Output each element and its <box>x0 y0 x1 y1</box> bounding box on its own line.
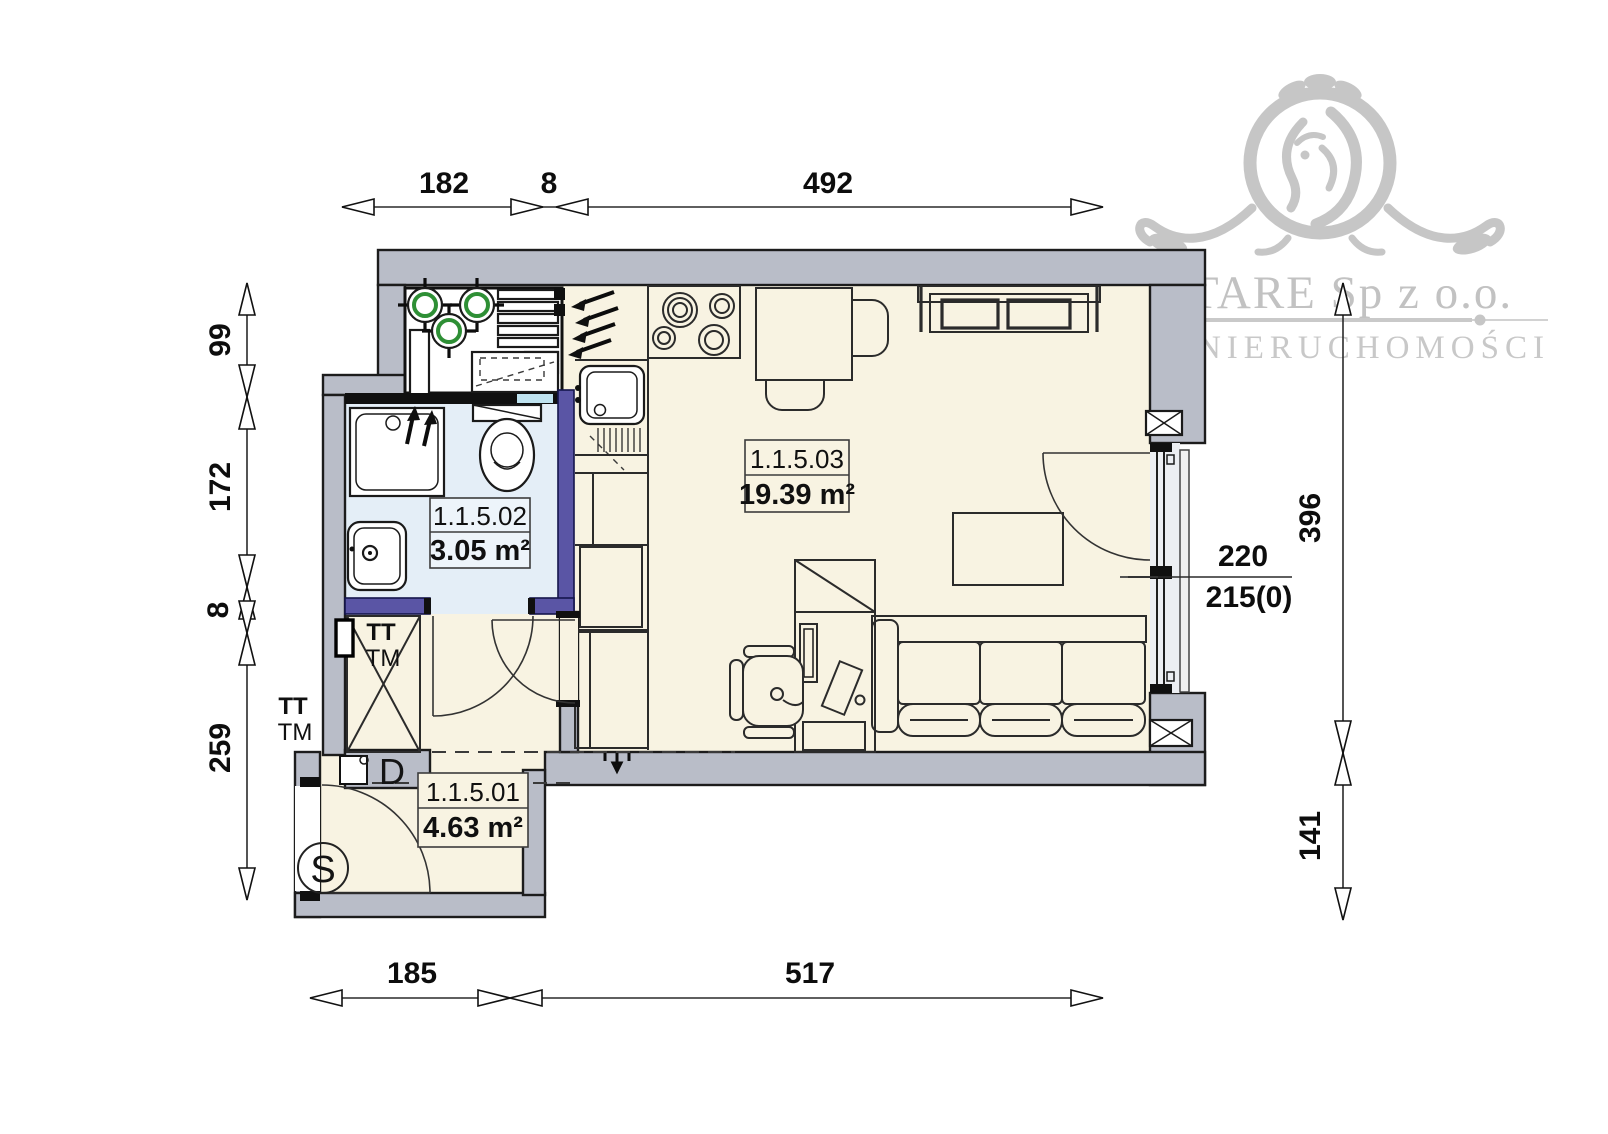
room-01-area: 4.63 m² <box>423 812 523 844</box>
dim-window-lower: 215(0) <box>1206 581 1293 614</box>
tt-label-outside: TT <box>278 693 308 720</box>
lion-crest-icon <box>1140 74 1501 259</box>
dim-window-upper: 220 <box>1218 540 1268 573</box>
dim-bottom-1: 185 <box>387 957 437 990</box>
meter-box <box>340 756 367 784</box>
dim-left-4: 259 <box>204 723 237 773</box>
dining-table <box>756 288 852 380</box>
top-wall <box>378 250 1205 285</box>
left-wall-step <box>323 375 405 395</box>
dim-top: 182 8 492 <box>342 167 1103 215</box>
sofa <box>872 616 1146 736</box>
accent-wall-right <box>558 390 574 614</box>
accent-wall-bottom-left <box>345 598 430 614</box>
room-02-id: 1.1.5.02 <box>433 501 527 531</box>
balcony-railing <box>1180 450 1189 692</box>
dim-bottom: 185 517 <box>310 957 1103 1006</box>
bottom-wall-main <box>545 752 1205 785</box>
room-01-id: 1.1.5.01 <box>426 777 520 807</box>
dim-bottom-2: 517 <box>785 957 835 990</box>
shower <box>350 406 444 496</box>
dim-left: 99 172 8 259 <box>202 283 255 900</box>
tm-label-inside: TM <box>366 645 401 672</box>
left-wall-mid <box>323 395 345 755</box>
dim-left-3: 8 <box>202 602 235 619</box>
room-label-02: 1.1.5.02 3.05 m² <box>430 498 530 568</box>
tt-label-inside: TT <box>366 619 396 646</box>
dim-top-1: 182 <box>419 167 469 200</box>
floorplan-canvas: ELITARE Sp z o.o. BIURO NIERUCHOMOŚCI <box>0 0 1608 1134</box>
room-03-id: 1.1.5.03 <box>750 444 844 474</box>
dim-left-1: 99 <box>204 323 237 356</box>
dim-right-2: 141 <box>1294 811 1327 861</box>
dashed-unit <box>472 352 558 392</box>
door-letter: D <box>379 751 405 792</box>
pipe <box>410 330 429 396</box>
room-03-area: 19.39 m² <box>739 479 855 511</box>
dim-left-2: 172 <box>204 462 237 512</box>
dim-top-2: 8 <box>541 167 558 200</box>
dim-right: 396 141 <box>1294 283 1351 920</box>
room-label-03: 1.1.5.03 19.39 m² <box>739 440 855 512</box>
room-label-01: 1.1.5.01 4.63 m² <box>418 773 528 847</box>
kitchen-sink <box>575 366 644 424</box>
dim-right-1: 396 <box>1294 493 1327 543</box>
dim-top-3: 492 <box>803 167 853 200</box>
bottom-wall-entrance <box>295 893 545 917</box>
tm-label-outside: TM <box>278 719 313 746</box>
washbasin <box>348 522 406 590</box>
bathroom-vent-strip <box>517 394 553 403</box>
floorplan-page: ELITARE Sp z o.o. BIURO NIERUCHOMOŚCI <box>0 0 1608 1134</box>
electrical-box <box>336 620 353 656</box>
entrance-letter: S <box>310 849 335 891</box>
installation-shaft <box>398 278 565 403</box>
room-02-area: 3.05 m² <box>430 535 530 567</box>
